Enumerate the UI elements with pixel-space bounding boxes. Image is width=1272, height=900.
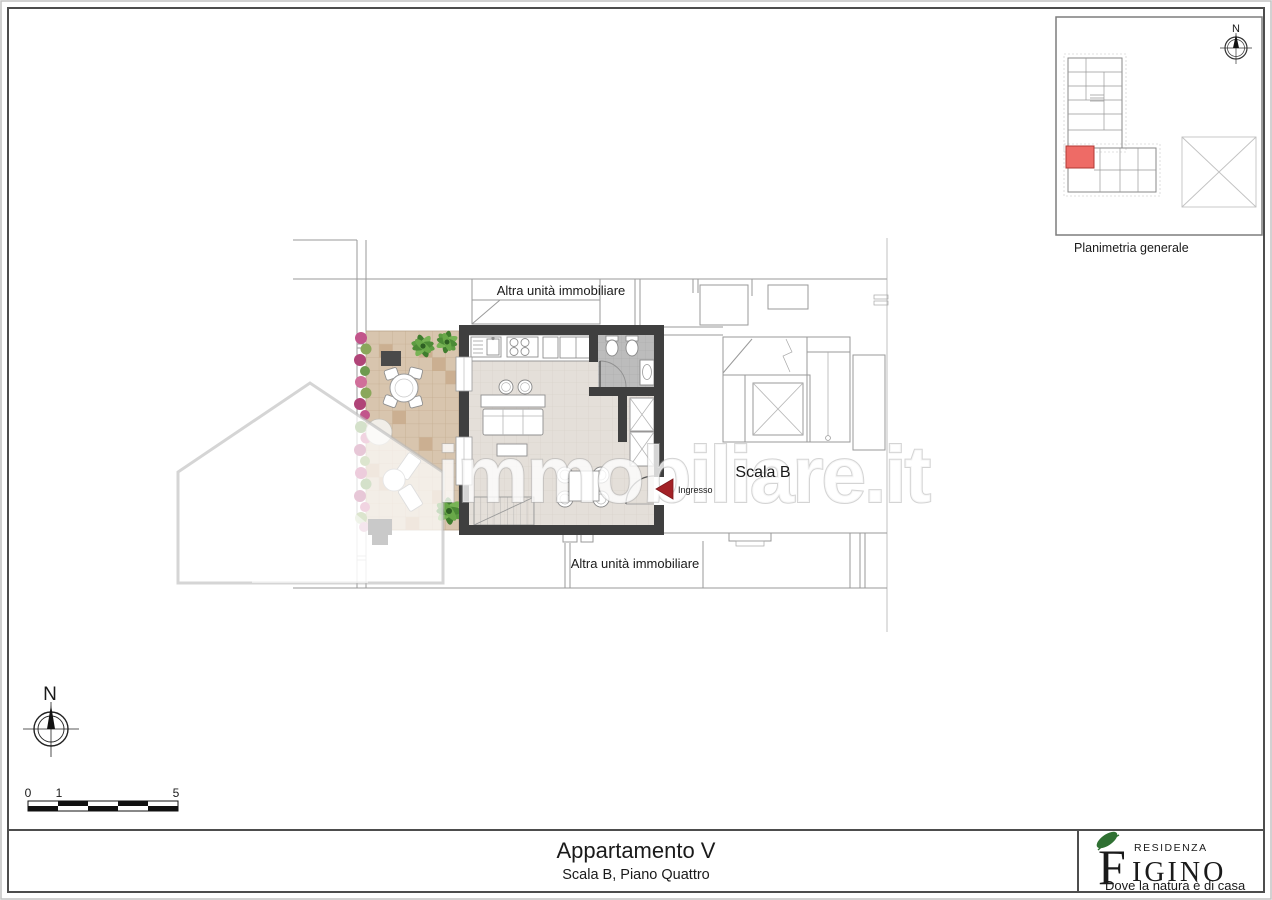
logo-tagline: Dove la natura è di casa — [1105, 878, 1246, 893]
kitchen-stove — [507, 337, 538, 357]
inset-unit-highlight — [1066, 146, 1094, 168]
label-altra-unita-top: Altra unità immobiliare — [497, 283, 626, 298]
title-block: Appartamento V Scala B, Piano Quattro — [557, 838, 716, 883]
floorplan-image: immobiliare.it Altra unità immobiliare A… — [0, 0, 1272, 900]
label-ingresso: Ingresso — [678, 485, 713, 495]
toilet — [606, 340, 618, 356]
scale-tick-5: 5 — [173, 786, 180, 800]
inset-crossed-block — [1182, 137, 1256, 207]
logo-brand-top: RESIDENZA — [1134, 842, 1208, 854]
label-altra-unita-bottom: Altra unità immobiliare — [571, 556, 700, 571]
kitchen — [468, 335, 592, 361]
label-scala-b: Scala B — [735, 464, 790, 481]
scale-tick-1: 1 — [56, 786, 63, 800]
inset-overview: N — [1056, 17, 1262, 255]
page-title: Appartamento V — [557, 838, 716, 863]
bidet — [626, 340, 638, 356]
watermark-text: immobiliare.it — [437, 430, 930, 519]
page-subtitle: Scala B, Piano Quattro — [562, 867, 710, 883]
terrace-post — [381, 351, 401, 366]
compass-n-label: N — [43, 684, 57, 705]
inset-caption: Planimetria generale — [1074, 241, 1189, 255]
floorplan-page: immobiliare.it Altra unità immobiliare A… — [0, 0, 1272, 900]
scale-tick-0: 0 — [25, 786, 32, 800]
